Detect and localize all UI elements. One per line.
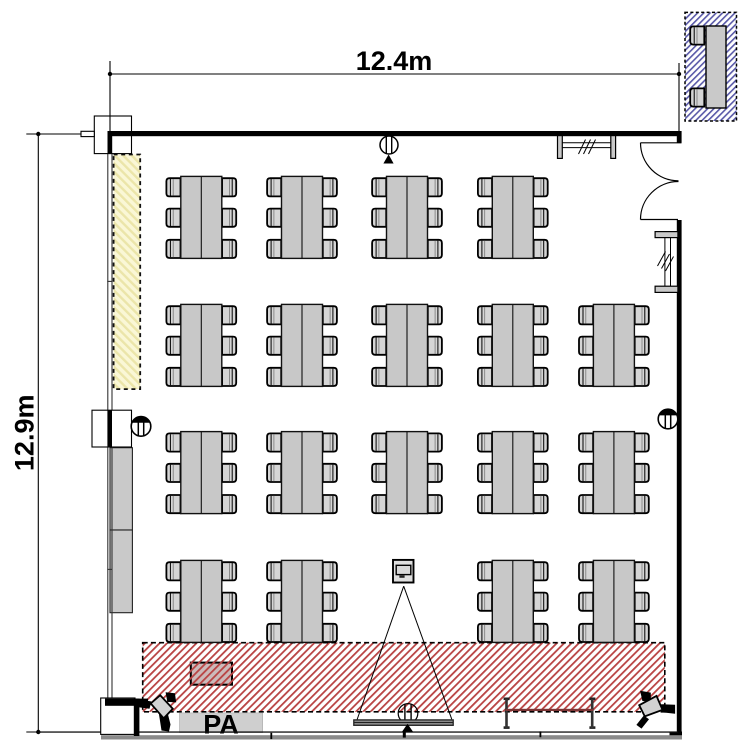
svg-text:PA: PA xyxy=(203,710,239,740)
svg-text:12.9m: 12.9m xyxy=(10,395,40,472)
svg-text:12.4m: 12.4m xyxy=(356,46,433,76)
